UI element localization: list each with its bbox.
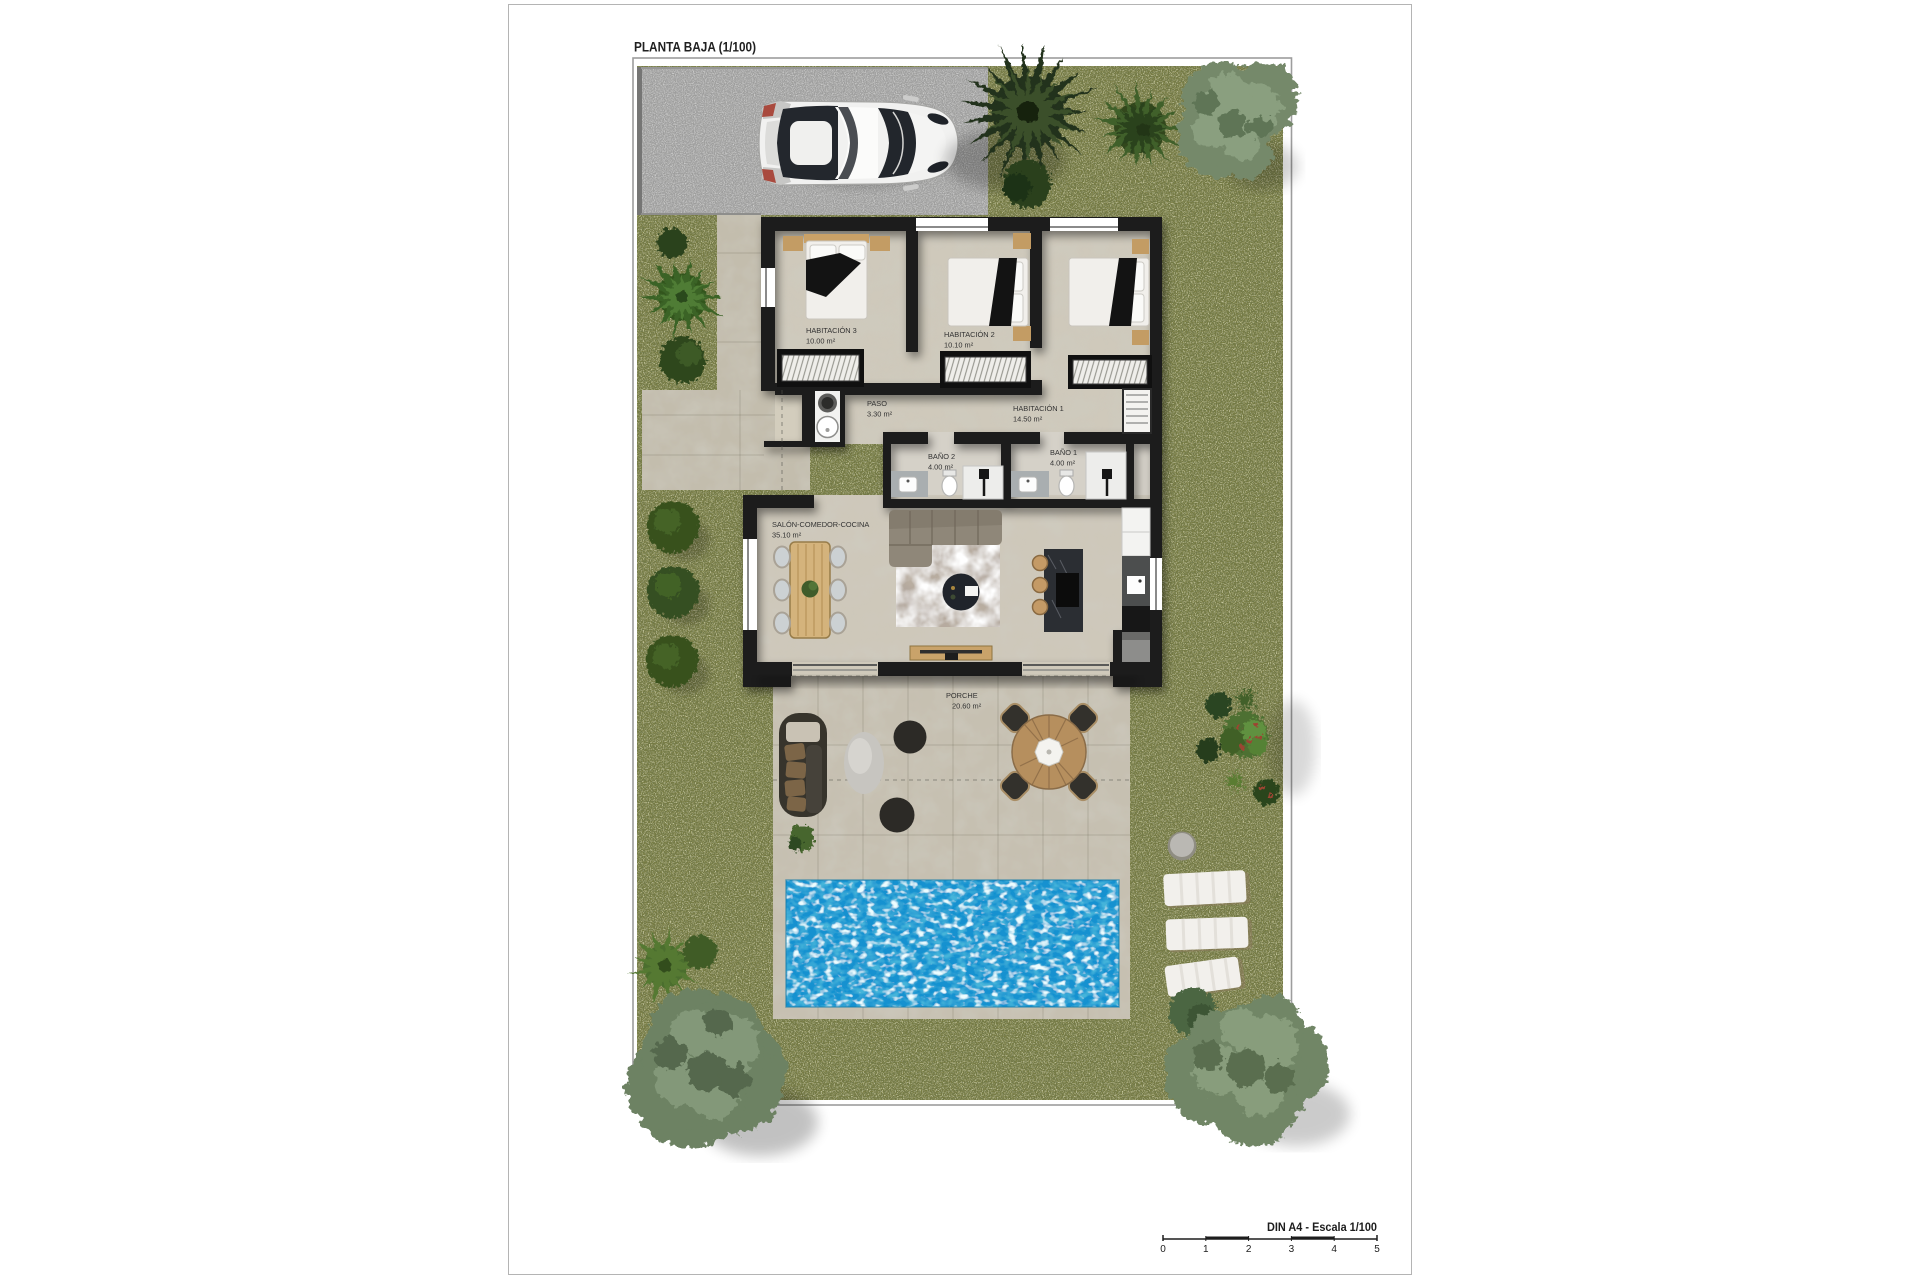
svg-text:HABITACIÓN 2: HABITACIÓN 2 [944,330,995,339]
svg-text:3: 3 [1289,1244,1295,1255]
svg-text:1: 1 [1203,1244,1209,1255]
svg-text:10.10 m²: 10.10 m² [944,341,974,350]
svg-text:0: 0 [1160,1244,1166,1255]
svg-text:14.50 m²: 14.50 m² [1013,415,1043,424]
svg-text:2: 2 [1246,1244,1252,1255]
svg-text:4.00 m²: 4.00 m² [928,463,954,472]
svg-text:HABITACIÓN 3: HABITACIÓN 3 [806,326,857,335]
svg-text:35.10 m²: 35.10 m² [772,531,802,540]
svg-text:4.00 m²: 4.00 m² [1050,459,1076,468]
svg-text:4: 4 [1331,1244,1337,1255]
svg-text:SALÓN-COMEDOR-COCINA: SALÓN-COMEDOR-COCINA [772,520,869,529]
svg-text:10.00 m²: 10.00 m² [806,337,836,346]
svg-text:3.30 m²: 3.30 m² [867,410,893,419]
svg-text:BAÑO 1: BAÑO 1 [1050,448,1077,457]
svg-text:BAÑO 2: BAÑO 2 [928,452,955,461]
svg-text:PASO: PASO [867,399,887,408]
svg-text:DIN A4 - Escala 1/100: DIN A4 - Escala 1/100 [1267,1222,1377,1234]
svg-text:5: 5 [1374,1244,1380,1255]
svg-text:HABITACIÓN 1: HABITACIÓN 1 [1013,404,1064,413]
svg-text:PORCHE: PORCHE [946,691,978,700]
svg-text:PLANTA BAJA (1/100): PLANTA BAJA (1/100) [634,40,756,55]
svg-text:20.60 m²: 20.60 m² [952,702,982,711]
